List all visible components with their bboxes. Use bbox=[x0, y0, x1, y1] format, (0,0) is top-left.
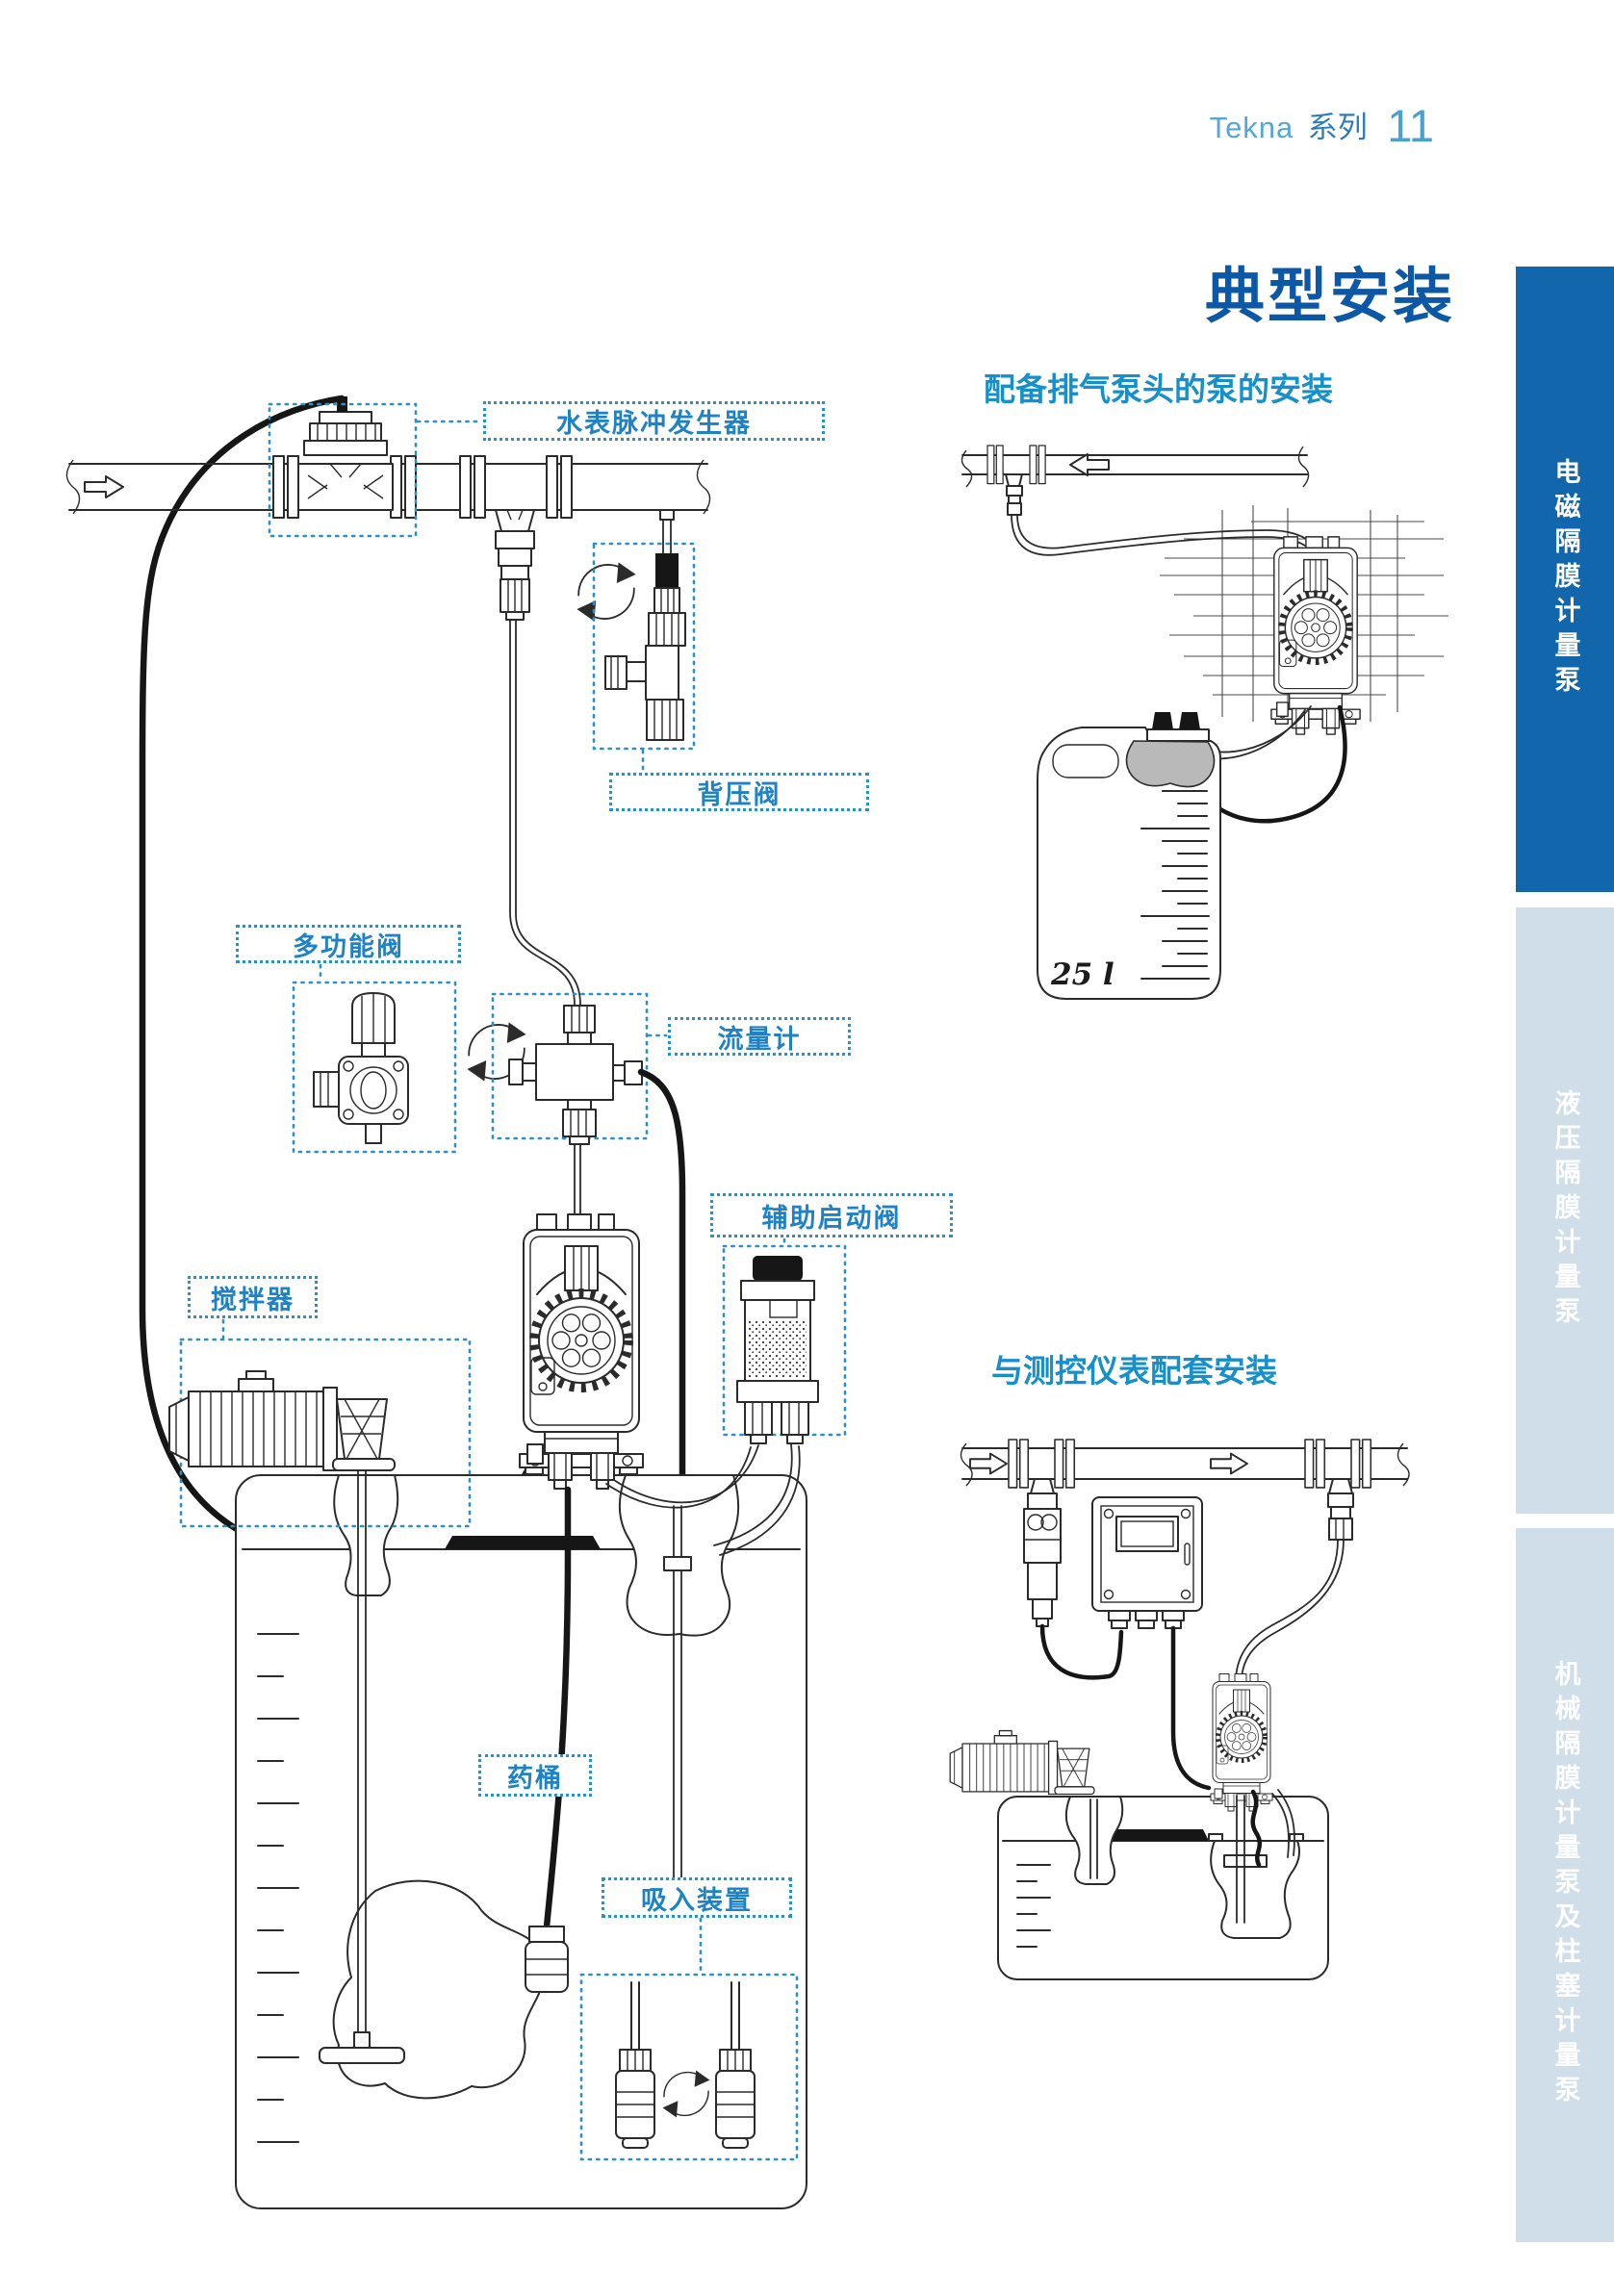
pulse-signal-cable bbox=[142, 398, 529, 1559]
label-flow-meter: 流量计 bbox=[668, 1017, 851, 1056]
page-header: Tekna 系列 11 bbox=[1107, 99, 1434, 152]
label-agitator: 搅拌器 bbox=[188, 1276, 318, 1318]
agitator-motor-b bbox=[950, 1731, 1094, 1795]
tank-b bbox=[998, 1797, 1328, 1979]
section-title-instrument: 与测控仪表配套安装 bbox=[991, 1345, 1277, 1391]
page-number: 11 bbox=[1387, 100, 1434, 151]
controller-pump-cable bbox=[1173, 1628, 1209, 1788]
series-name: Tekna bbox=[1210, 111, 1294, 144]
label-suction-device: 吸入装置 bbox=[602, 1877, 792, 1918]
auxiliary-priming-valve bbox=[724, 1239, 845, 1443]
label-water-meter: 水表脉冲发生器 bbox=[483, 401, 825, 441]
flow-direction-arrow bbox=[1211, 1454, 1247, 1474]
injection-valve-b bbox=[1236, 1479, 1353, 1694]
degassing-pump-diagram bbox=[961, 446, 1448, 999]
sidebar-tab-label: 液压隔膜计量泵 bbox=[1552, 1089, 1578, 1332]
water-pipe-a bbox=[961, 446, 1308, 487]
flow-direction-arrow bbox=[1070, 454, 1109, 475]
label-back-pressure-valve: 背压阀 bbox=[609, 773, 869, 811]
sidebar-tab-hydraulic-diaphragm-pump: 液压隔膜计量泵 bbox=[1516, 907, 1614, 1514]
label-chemical-tank: 药桶 bbox=[478, 1754, 592, 1797]
series-suffix: 系列 bbox=[1308, 111, 1368, 144]
installation-diagram-artwork bbox=[0, 0, 1614, 2296]
injection-fitting-a bbox=[1006, 474, 1022, 515]
label-auxiliary-priming-valve: 辅助启动阀 bbox=[710, 1193, 953, 1237]
carboy-neck-funnel bbox=[1126, 741, 1214, 787]
sensor-cable bbox=[1042, 1626, 1121, 1677]
catalog-page: Tekna 系列 11 典型安装 配备排气泵头的泵的安装 与测控仪表配套安装 2… bbox=[0, 0, 1614, 2296]
sidebar-tab-solenoid-diaphragm-pump: 电磁隔膜计量泵 bbox=[1516, 267, 1614, 892]
chemical-carboy-25l bbox=[1038, 712, 1220, 999]
multifunction-valve bbox=[294, 965, 455, 1152]
metering-pump bbox=[520, 1214, 643, 1489]
metering-pump-b bbox=[1211, 1674, 1272, 1812]
pump-mounting-pad-b bbox=[1109, 1829, 1209, 1841]
sidebar-tab-mechanical-diaphragm-plunger-pump: 机械隔膜计量泵及柱塞计量泵 bbox=[1516, 1528, 1614, 2242]
water-meter-pulse-generator bbox=[269, 396, 481, 536]
degassing-head-pump bbox=[1271, 537, 1360, 734]
page-title: 典型安装 bbox=[1068, 247, 1455, 334]
pump-mounting-pad bbox=[445, 1536, 601, 1549]
controller-box bbox=[1092, 1497, 1209, 1788]
main-installation-diagram bbox=[66, 396, 845, 2208]
instrument-diagram bbox=[950, 1440, 1409, 1979]
rotate-detail-arrows bbox=[576, 562, 635, 621]
flow-direction-arrow bbox=[970, 1454, 1007, 1474]
label-multifunction-valve: 多功能阀 bbox=[236, 925, 461, 963]
carboy-capacity-label: 25 l bbox=[1051, 957, 1114, 992]
agitator-propeller bbox=[320, 2048, 404, 2063]
water-pipe-b bbox=[961, 1440, 1409, 1488]
back-pressure-valve bbox=[594, 510, 694, 771]
section-title-degassing: 配备排气泵头的泵的安装 bbox=[984, 364, 1333, 410]
sidebar-tab-label: 电磁隔膜计量泵 bbox=[1552, 458, 1578, 701]
sidebar-tab-label: 机械隔膜计量泵及柱塞计量泵 bbox=[1552, 1660, 1578, 2110]
flow-direction-arrow bbox=[85, 476, 123, 497]
foot-valve bbox=[525, 1926, 568, 1992]
sidebar-section-tabs: 电磁隔膜计量泵 液压隔膜计量泵 机械隔膜计量泵及柱塞计量泵 bbox=[1516, 0, 1614, 2296]
injection-point-fitting bbox=[496, 510, 580, 1005]
